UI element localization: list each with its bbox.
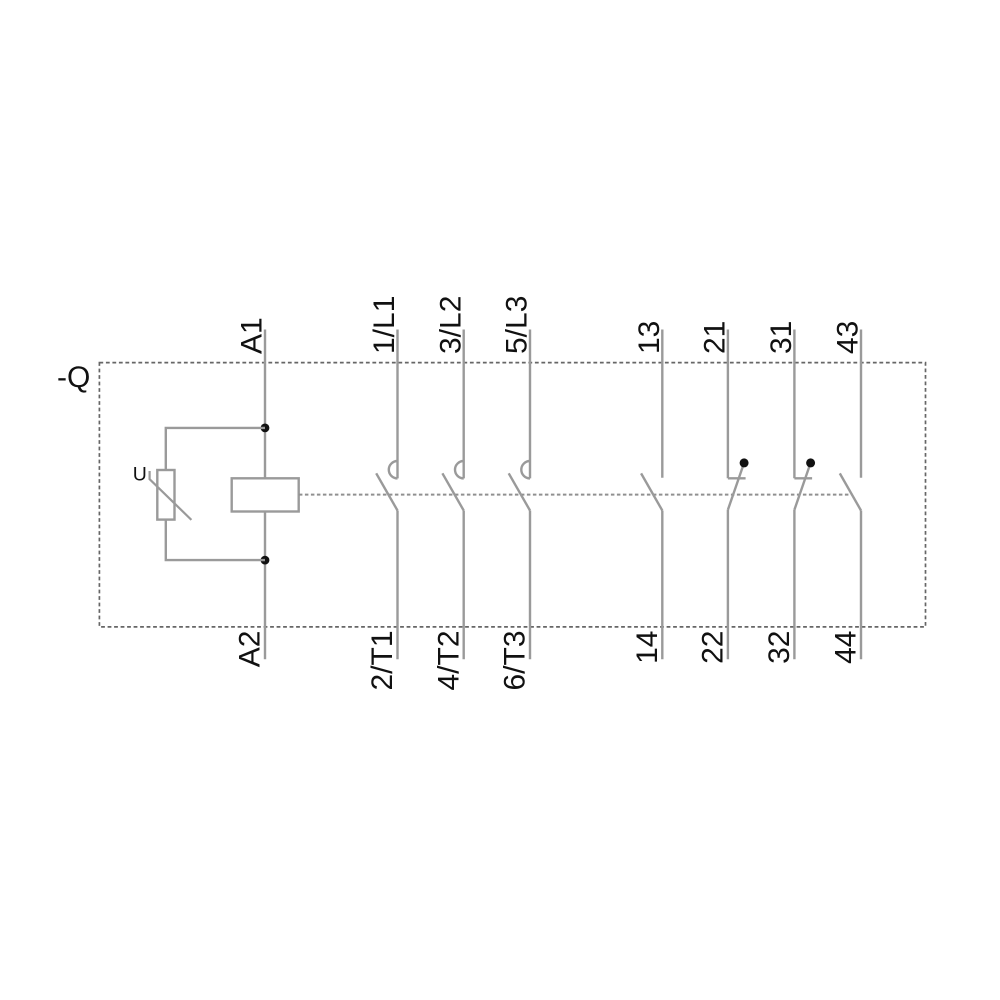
svg-text:A1: A1: [236, 317, 269, 354]
svg-text:1/L1: 1/L1: [368, 296, 401, 354]
svg-text:14: 14: [631, 631, 664, 664]
svg-text:44: 44: [830, 631, 863, 664]
svg-text:2/T1: 2/T1: [366, 631, 399, 691]
svg-text:5/L3: 5/L3: [501, 296, 534, 354]
svg-text:32: 32: [763, 631, 796, 664]
svg-text:31: 31: [765, 321, 798, 354]
svg-text:43: 43: [832, 321, 865, 354]
svg-text:21: 21: [699, 321, 732, 354]
svg-text:4/T2: 4/T2: [432, 631, 465, 691]
svg-text:U: U: [133, 464, 147, 486]
svg-text:3/L2: 3/L2: [434, 296, 467, 354]
svg-text:A2: A2: [234, 631, 267, 668]
svg-text:13: 13: [633, 321, 666, 354]
svg-text:-Q: -Q: [57, 361, 90, 394]
svg-text:22: 22: [697, 631, 730, 664]
svg-text:6/T3: 6/T3: [499, 631, 532, 691]
